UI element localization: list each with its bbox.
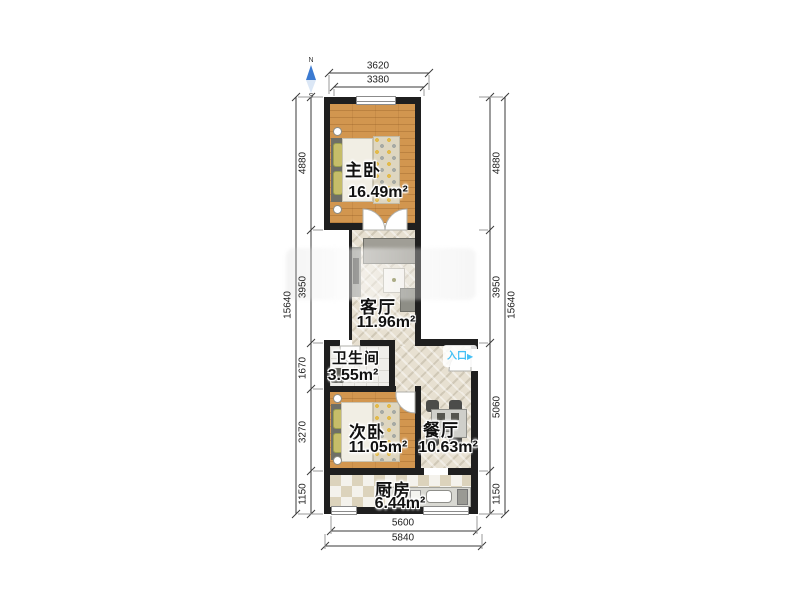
dim-top-outer: 3620 [367,61,389,72]
dim-left-segment: 1670 [298,357,309,379]
room-area-bathroom: 3.55m² [322,367,384,385]
room-name-bathroom: 卫生间 [327,347,385,368]
dim-right-segment: 1150 [492,483,503,505]
door-arc-master [363,209,385,230]
floor-plan: N S [0,0,800,600]
room-area-dining-room: 10.63m² [406,439,490,457]
entrance-arrow-icon: ▶ [467,352,473,361]
dim-left-segment: 3950 [298,276,309,298]
dim-left-total: 15640 [283,291,294,319]
room-name-master-bedroom: 主卧 [336,156,390,181]
dim-left-segment: 1150 [298,483,309,505]
room-area-kitchen: 6.44m² [358,495,442,513]
dim-right-segment: 4880 [492,152,503,174]
room-area-living-room: 11.96m² [344,314,428,332]
door-arc-master [385,209,407,230]
dim-left-segment: 4880 [298,152,309,174]
room-name-dining-room: 餐厅 [414,416,468,441]
dim-bottom-outer: 5840 [392,533,414,544]
dim-right-segment: 3950 [492,276,503,298]
door-arc-second-bedroom [396,392,415,413]
dim-right-segment: 5060 [492,396,503,418]
dim-top-inner: 3380 [367,75,389,86]
dim-right-total: 15640 [507,291,518,319]
dim-bottom-inner: 5600 [392,518,414,529]
dim-left-segment: 3270 [298,421,309,443]
entrance-label: 入口▶ [447,350,479,363]
room-area-master-bedroom: 16.49m² [336,184,420,202]
